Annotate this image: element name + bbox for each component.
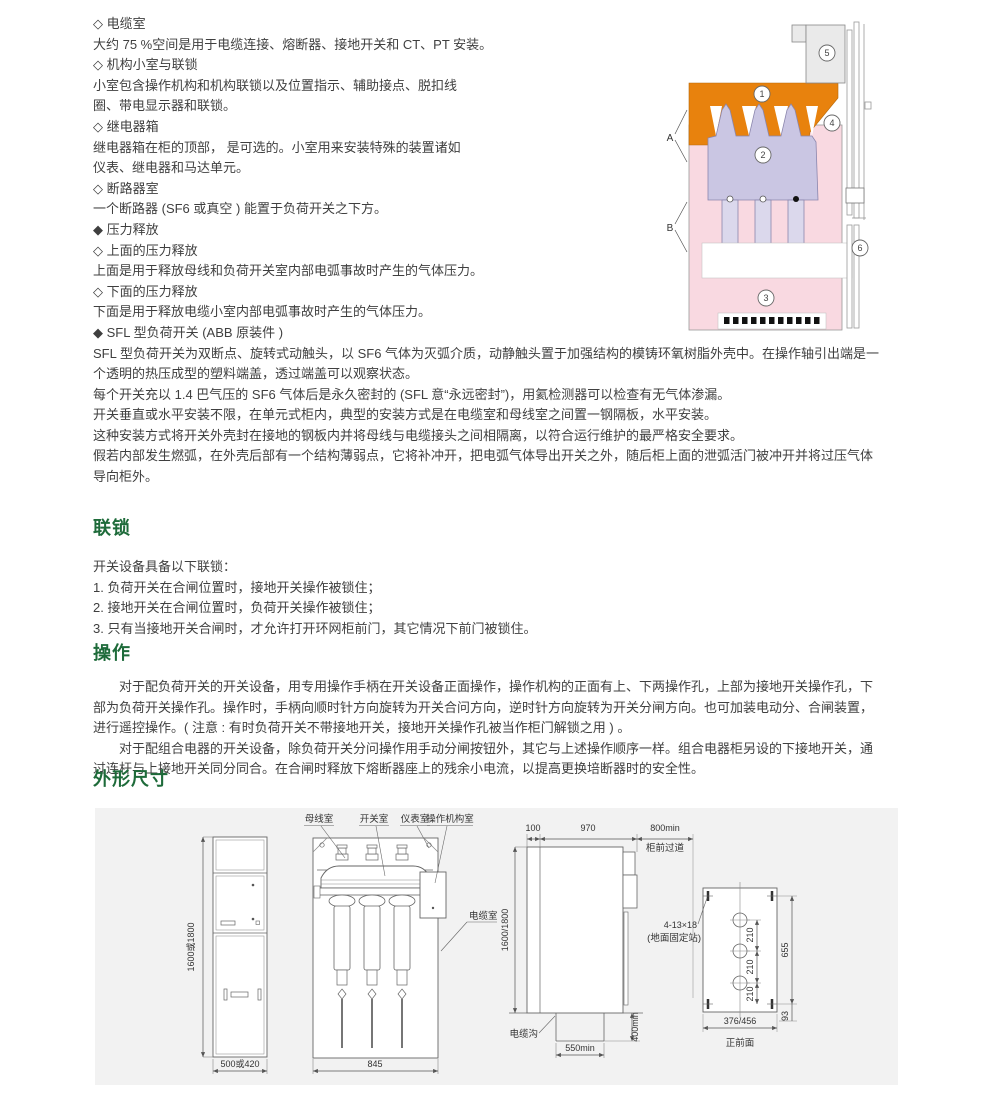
foundation-dim-655: 655 [780,942,790,957]
svg-text:2: 2 [760,150,765,160]
side-view-dim-970: 970 [580,823,595,833]
foundation-dim-210: 210 [745,986,755,1001]
operation-line: 对于配组合电器的开关设备，除负荷开关分问操作用手动分闸按钮外，其它与上述操作顺序… [93,739,983,760]
interlock-line: 开关设备具备以下联锁： [93,557,983,578]
foundation-dim-210: 210 [745,959,755,974]
intro-line: 每个开关充以 1.4 巴气压的 SF6 气体后是永久密封的 (SFL 意“永远密… [93,385,983,406]
intro-line: 个透明的热压成型的塑料端盖，透过端盖可以观察状态。 [93,364,983,385]
intro-line: SFL 型负荷开关为双断点、旋转式动触头，以 SF6 气体为灭弧介质，动静触头置… [93,344,983,365]
section-interlock: 联锁 开关设备具备以下联锁： 1. 负荷开关在合闸位置时，接地开关操作被锁住； … [93,514,983,639]
front-view-height-dim: 1600或1800 [185,922,196,971]
intro-line: 假若内部发生燃弧，在外壳后部有一个结构薄弱点，它将补冲开，把电弧气体导出开关之外… [93,446,983,467]
room-label-instrument: 仪表室 [401,813,430,825]
intro-line: 导向柜外。 [93,467,983,488]
interlock-line: 3. 只有当接地开关合闸时，才允许打开环网柜前门，其它情况下前门被锁住。 [93,619,983,640]
foundation-dim-93: 93 [780,1011,790,1021]
svg-text:5: 5 [824,48,829,58]
outline-dimension-drawings: 1600或1800 500或420 [95,808,898,1085]
operation-line: 过连杆与上接地开关同分同合。在合闸时释放下熔断器座上的残余小电流，以提高更换培断… [93,759,983,780]
section-title-operation: 操作 [93,639,983,665]
trench-label: 电缆沟 [509,1028,538,1040]
label-b: B [667,223,674,234]
mechanism-box [420,872,446,918]
section-title-interlock: 联锁 [93,514,983,540]
holes-note: (地面固定站) [647,932,701,944]
holes-label: 4-13×18 [664,920,697,930]
svg-text:6: 6 [857,243,862,253]
aisle-label: 柜前过道 [646,842,685,854]
cable-bushing [755,200,771,244]
side-view-dim-550: 550min [565,1043,595,1053]
intro-line: 开关垂直或水平安装不限，在单元式柜内，典型的安装方式是在电缆室和母线室之间置一钢… [93,405,983,426]
section-operation: 操作 对于配负荷开关的开关设备，用专用操作手柄在开关设备正面操作，操作机构的正面… [93,639,983,780]
intro-line: 这种安装方式将开关外壳封在接地的钢板内并将母线与电缆接头之间相隔离，以符合运行维… [93,426,983,447]
side-view-height-dim: 1600/1800 [500,909,510,952]
svg-text:4: 4 [829,118,834,128]
section-view-width-dim: 845 [367,1059,382,1069]
section-title-dimensions: 外形尺寸 [93,765,169,791]
front-door [846,22,871,328]
foundation-dim-210: 210 [745,927,755,942]
room-label-busbar: 母线室 [305,813,334,825]
side-view-dim-400: 400min [630,1012,640,1042]
side-view-dim-100: 100 [525,823,540,833]
foundation-caption: 正前面 [726,1037,755,1049]
side-view-dim-800: 800min [650,823,680,833]
interlock-line: 1. 负荷开关在合闸位置时，接地开关操作被锁住； [93,578,983,599]
foundation-width-dim: 376/456 [724,1016,757,1026]
interlock-line: 2. 接地开关在合闸位置时，负荷开关操作被锁住； [93,598,983,619]
front-view-width-dim: 500或420 [220,1058,259,1069]
room-label-switch: 开关室 [360,813,389,825]
diagram-side-labels [675,110,687,252]
cable-bushing [722,200,738,244]
switchgear-section-diagram: 1 2 3 4 5 6 A B [660,10,993,340]
operation-line: 进行遥控操作。( 注意 : 有时负荷开关不带接地开关，接地开关操作孔被当作柜门解… [93,718,983,739]
operation-line: 部为负荷开关操作孔。操作时，手柄向顺时针方向旋转为开关合问方向，逆时针方向旋转为… [93,698,983,719]
operation-line: 对于配负荷开关的开关设备，用专用操作手柄在开关设备正面操作，操作机构的正面有上、… [93,677,983,698]
relay-box-region [792,25,845,83]
svg-text:3: 3 [763,293,768,303]
label-a: A [667,133,674,144]
room-label-cable: 电缆室 [469,910,498,922]
room-label-mechanism: 操作机构室 [426,813,474,825]
cable-bushing [788,200,804,244]
door-handle [846,188,864,203]
svg-text:1: 1 [759,89,764,99]
